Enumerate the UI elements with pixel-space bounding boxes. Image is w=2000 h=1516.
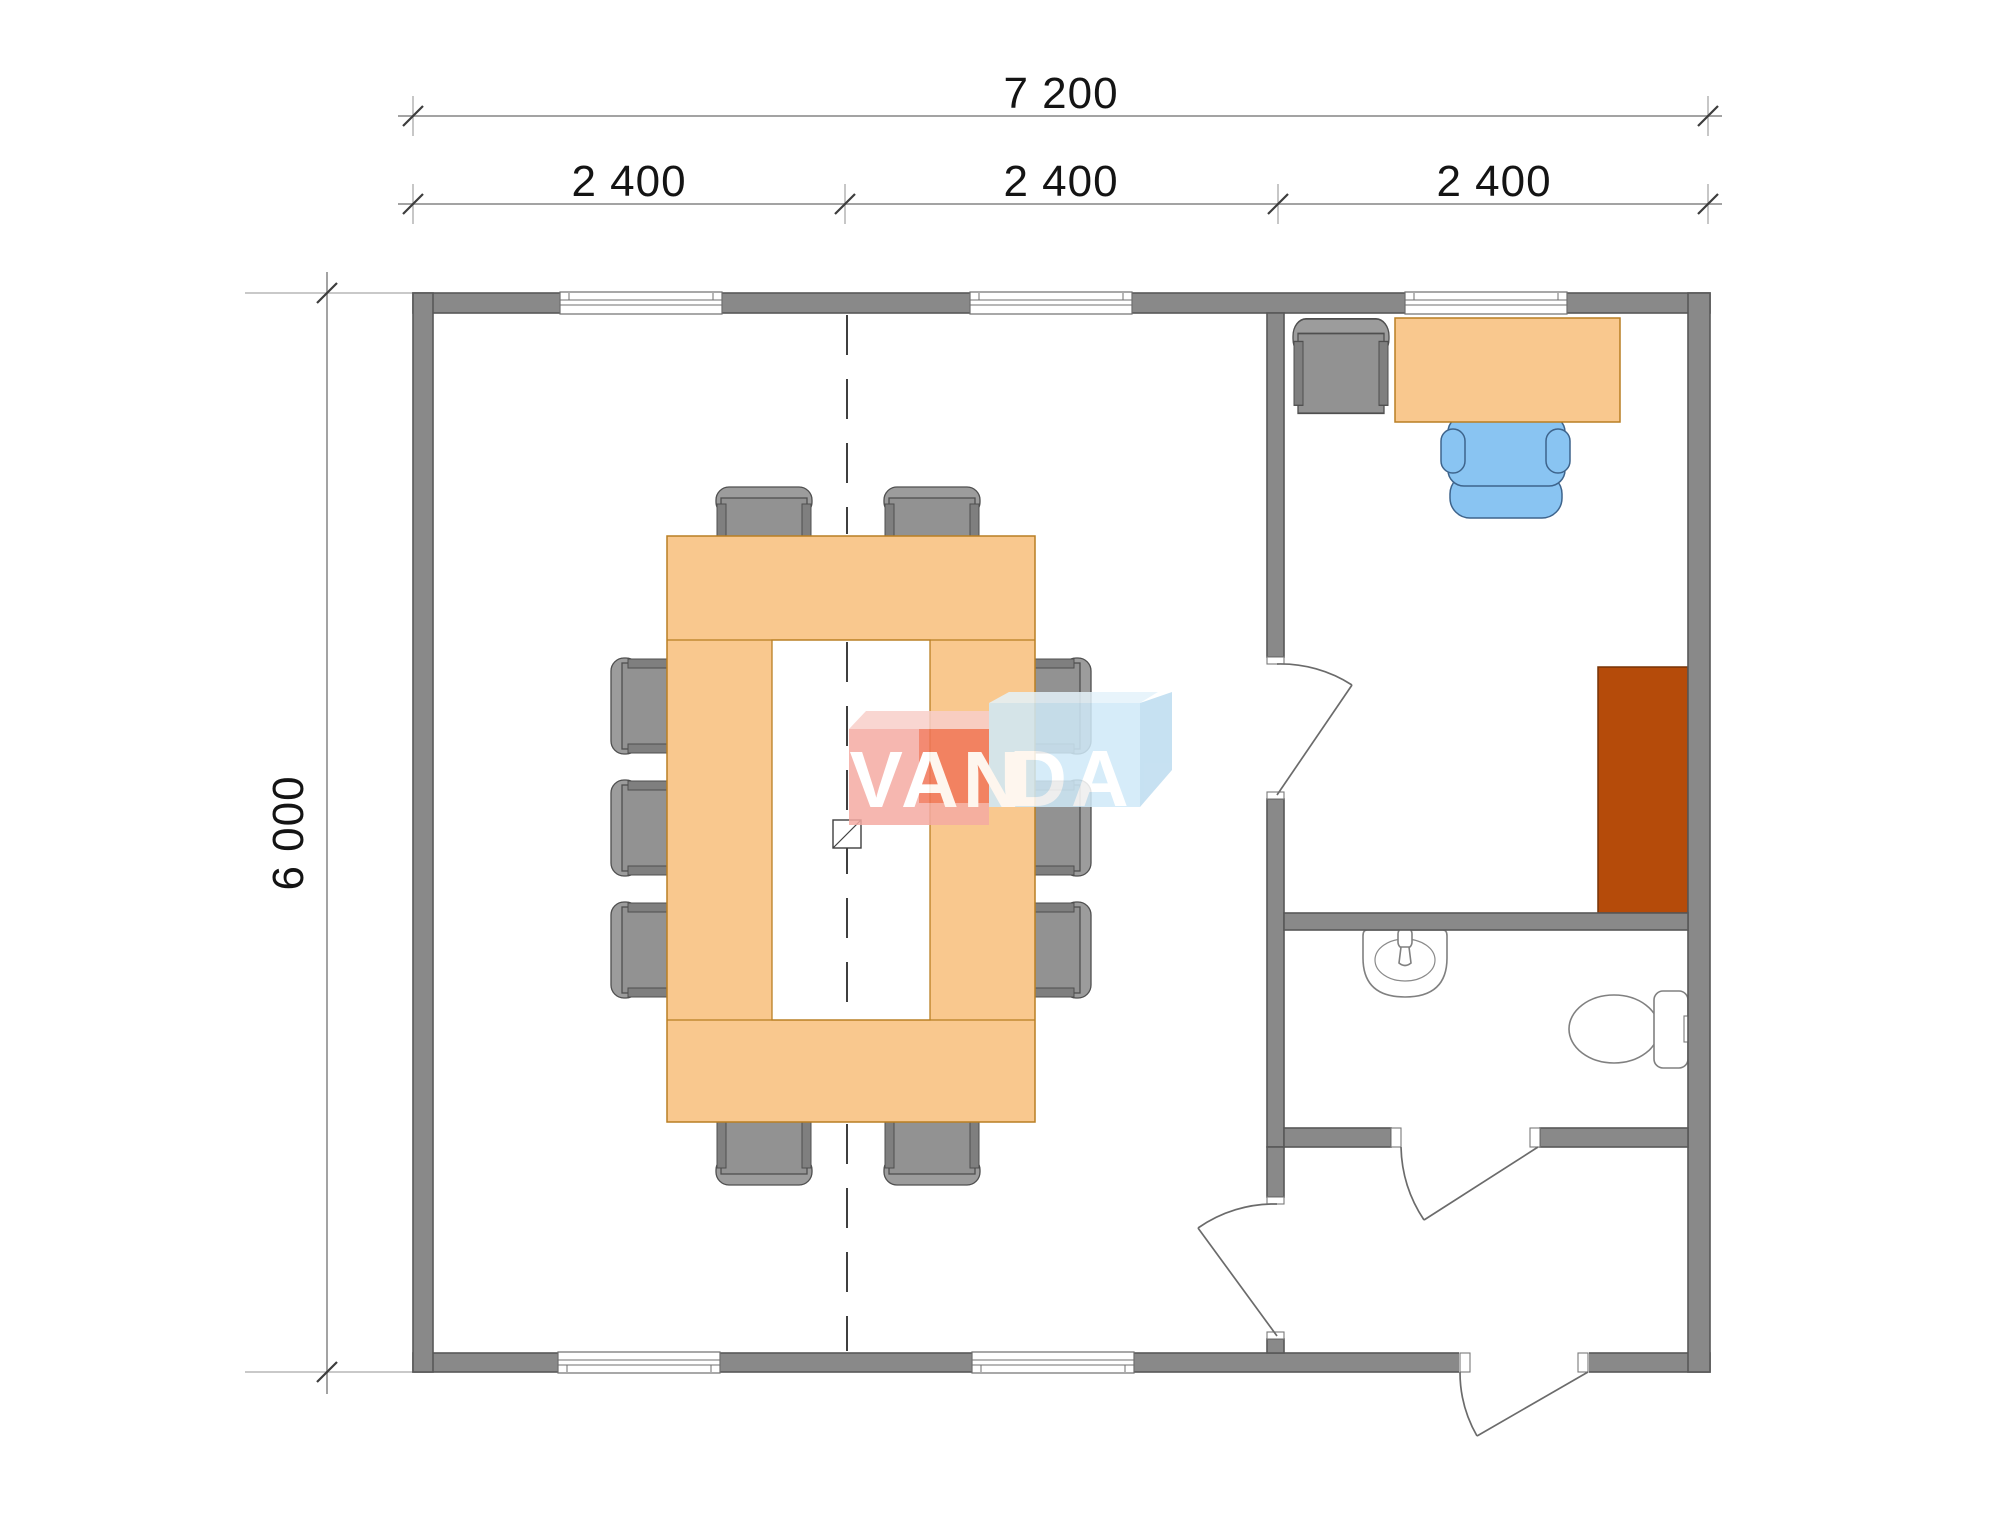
- toilet-tank: [1654, 991, 1688, 1068]
- dim-label-total-height: 6 000: [264, 775, 313, 890]
- door-leaf: [1424, 1147, 1538, 1220]
- logo-blue-top-face: [989, 692, 1158, 703]
- door-entrance: [1459, 1352, 1589, 1436]
- dimension-total-width: 7 200: [398, 69, 1722, 136]
- office-cabinet: [1598, 667, 1688, 913]
- door-jamb: [1267, 1197, 1284, 1204]
- wall-partition-vertical: [1267, 313, 1284, 657]
- toilet: [1569, 991, 1691, 1068]
- floor-plan-page: 7 200 2 400 2 400 2 400 6 000: [0, 0, 2000, 1516]
- wall-exterior-left: [413, 293, 433, 1372]
- door-swing-arc: [1401, 1147, 1424, 1220]
- wall-office-bathroom: [1284, 913, 1688, 930]
- logo-text-da: DA: [1009, 734, 1133, 823]
- dim-label-bay-3: 2 400: [1436, 157, 1551, 206]
- door-leaf: [1277, 685, 1352, 795]
- door-swing-arc: [1198, 1204, 1277, 1228]
- door-swing-arc: [1277, 664, 1352, 685]
- wall-partition-vertical: [1267, 1147, 1284, 1197]
- conference-chair: [884, 1114, 980, 1185]
- sink: [1363, 924, 1447, 997]
- dim-label-bay-2: 2 400: [1003, 157, 1118, 206]
- door-jamb: [1267, 792, 1284, 799]
- door-jamb: [1267, 657, 1284, 664]
- office-furniture: [1293, 318, 1688, 913]
- window: [972, 1352, 1134, 1373]
- vanda-watermark: VAN DA: [849, 692, 1172, 825]
- window: [970, 292, 1132, 314]
- door-office: [1267, 657, 1352, 799]
- office-task-chair: [1441, 416, 1570, 518]
- door-swing-arc: [1460, 1372, 1477, 1436]
- conference-chair: [716, 1114, 812, 1185]
- wall-bathroom-hall: [1284, 1128, 1391, 1147]
- wall-exterior-right: [1688, 293, 1710, 1372]
- dimension-bays: 2 400 2 400 2 400: [398, 157, 1722, 224]
- wall-partition-vertical: [1267, 1339, 1284, 1353]
- center-axis: [833, 315, 861, 1351]
- dim-label-bay-1: 2 400: [571, 157, 686, 206]
- dimension-total-height: 6 000: [245, 272, 413, 1394]
- logo-blue-side-face: [1140, 692, 1172, 807]
- floor-plan-drawing: 7 200 2 400 2 400 2 400 6 000: [0, 0, 2000, 1516]
- door-opening: [1459, 1352, 1589, 1373]
- door-hall: [1198, 1197, 1284, 1339]
- dim-label-total-width: 7 200: [1003, 69, 1118, 118]
- wall-bathroom-hall: [1540, 1128, 1688, 1147]
- logo-text-van: VAN: [850, 735, 1025, 824]
- window: [558, 1352, 720, 1373]
- door-jamb: [1530, 1128, 1540, 1147]
- window: [1405, 292, 1567, 314]
- sink-faucet-spout: [1399, 947, 1411, 966]
- bathroom-fixtures: [1363, 924, 1691, 1068]
- office-desk: [1395, 318, 1620, 422]
- doors: [1198, 657, 1589, 1436]
- office-armchair: [1293, 319, 1389, 413]
- task-chair-armrest: [1441, 429, 1465, 473]
- wall-partition-vertical: [1267, 799, 1284, 1147]
- door-bathroom: [1391, 1128, 1540, 1220]
- toilet-bowl: [1569, 995, 1659, 1063]
- door-leaf: [1477, 1372, 1588, 1436]
- task-chair-armrest: [1546, 429, 1570, 473]
- door-leaf: [1198, 1228, 1277, 1336]
- door-jamb: [1578, 1353, 1588, 1372]
- logo-pink-top-face: [849, 711, 1009, 729]
- window: [560, 292, 722, 314]
- door-jamb: [1391, 1128, 1401, 1147]
- door-jamb: [1460, 1353, 1470, 1372]
